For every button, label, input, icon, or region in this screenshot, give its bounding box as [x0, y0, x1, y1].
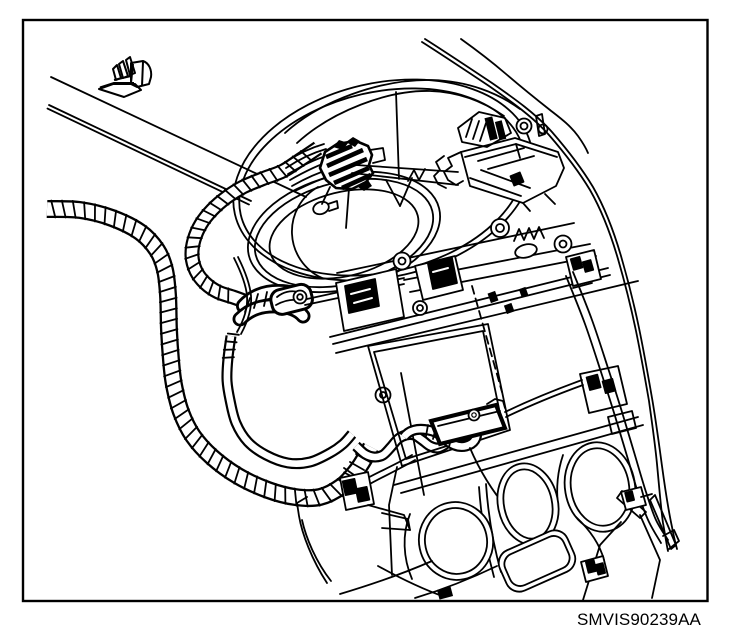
svg-text:SMVIS90239AA: SMVIS90239AA	[577, 610, 702, 629]
